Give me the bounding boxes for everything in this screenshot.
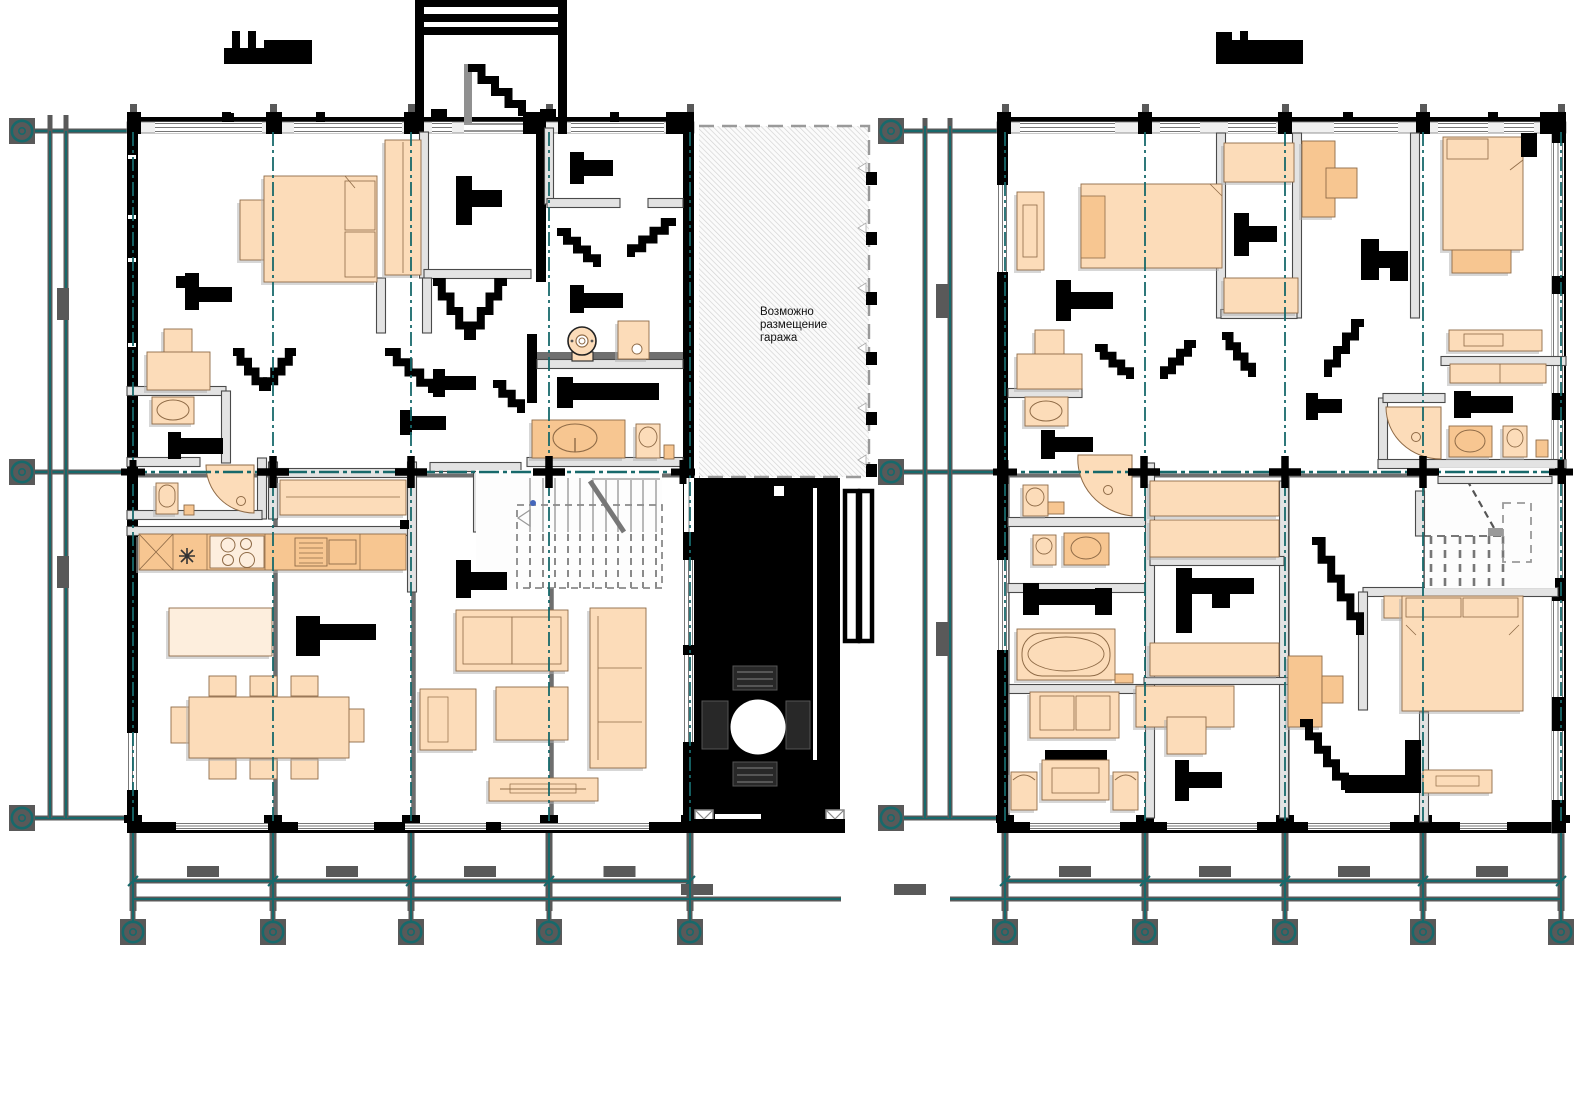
svg-text:гаража: гаража <box>760 332 798 344</box>
svg-text:размещение: размещение <box>760 319 827 331</box>
svg-text:Возможно: Возможно <box>760 306 814 318</box>
